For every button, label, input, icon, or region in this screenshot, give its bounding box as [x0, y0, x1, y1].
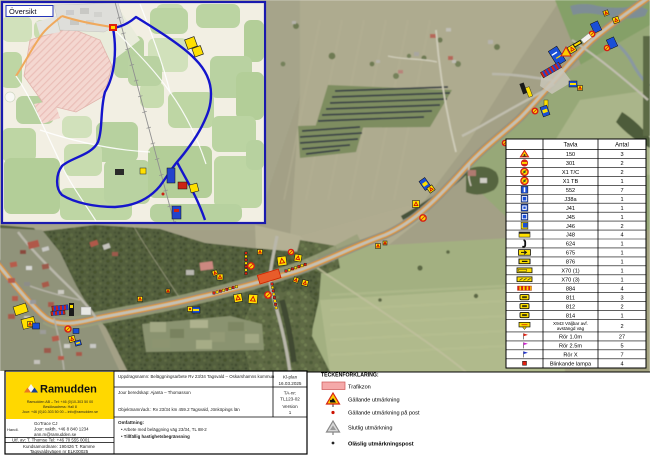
svg-text:Tagsvaldsvägen nr ELK00025: Tagsvaldsvägen nr ELK00025 [30, 449, 89, 454]
svg-text:Ramudden: Ramudden [40, 384, 97, 396]
svg-text:1: 1 [620, 269, 623, 275]
svg-text:1: 1 [620, 251, 623, 257]
svg-text:J38a: J38a [564, 197, 577, 203]
svg-text:• Tillfällig hastighetsbegrän: • Tillfällig hastighetsbegränsning [121, 434, 190, 439]
svg-text:1: 1 [620, 242, 623, 248]
svg-text:Version: Version [282, 404, 298, 409]
svg-text:884: 884 [566, 286, 575, 292]
svg-text:1: 1 [620, 197, 623, 203]
svg-text:2: 2 [620, 324, 623, 330]
svg-text:Rör 1.0m: Rör 1.0m [559, 335, 582, 341]
svg-text:301: 301 [566, 161, 575, 167]
svg-text:X70 (1): X70 (1) [561, 269, 579, 275]
svg-text:Tavla: Tavla [563, 143, 578, 149]
svg-text:Objektnamn/adr.: Rv 23/34 km 4: Objektnamn/adr.: Rv 23/34 km 459.2 Tagsv… [118, 407, 240, 412]
svg-text:1: 1 [620, 179, 623, 185]
svg-text:Jour: vakth. +46 8 840 1234: Jour: vakth. +46 8 840 1234 [34, 427, 89, 432]
svg-text:1: 1 [620, 260, 623, 266]
svg-text:7: 7 [620, 353, 623, 359]
svg-text:ann.m@ramudden.se: ann.m@ramudden.se [34, 432, 77, 437]
svg-text:Blinkande lampa: Blinkande lampa [550, 361, 592, 367]
svg-text:1: 1 [620, 277, 623, 283]
svg-text:27: 27 [619, 335, 625, 341]
svg-text:2: 2 [620, 224, 623, 230]
svg-text:16.03.2025: 16.03.2025 [279, 381, 302, 386]
svg-text:X70 (3): X70 (3) [561, 277, 579, 283]
svg-text:X1 T/C: X1 T/C [562, 170, 579, 176]
svg-text:2: 2 [620, 304, 623, 310]
svg-text:Handl.: Handl. [7, 427, 19, 432]
svg-text:3: 3 [620, 295, 623, 301]
svg-text:150: 150 [566, 152, 575, 158]
svg-text:Jour beredskap: Ajanta – Thoma: Jour beredskap: Ajanta – Thomasson [118, 390, 191, 395]
svg-text:812: 812 [566, 304, 575, 310]
svg-text:Omfattning:: Omfattning: [118, 420, 144, 425]
svg-text:876: 876 [566, 260, 575, 266]
svg-text:3: 3 [620, 152, 623, 158]
svg-text:Antal: Antal [615, 143, 629, 149]
svg-text:Översikt: Översikt [9, 7, 37, 16]
svg-text:• Arbete med beläggning väg 2: • Arbete med beläggning väg 23/34, TL 88… [121, 427, 207, 432]
svg-text:Rör 2.5m: Rör 2.5m [559, 344, 582, 350]
svg-text:7: 7 [620, 188, 623, 194]
svg-text:J41: J41 [566, 206, 575, 212]
svg-text:814: 814 [566, 313, 575, 319]
svg-text:J48: J48 [566, 233, 575, 239]
svg-text:1: 1 [620, 215, 623, 221]
svg-text:Rör X: Rör X [563, 353, 578, 359]
svg-text:1: 1 [620, 313, 623, 319]
svg-text:Kl-plan: Kl-plan [283, 375, 298, 380]
svg-text:2: 2 [620, 170, 623, 176]
svg-text:J46: J46 [566, 224, 575, 230]
svg-text:TECKENFÖRKLARING:: TECKENFÖRKLARING: [321, 372, 379, 379]
svg-text:Gällande utmärkning på post: Gällande utmärkning på post [348, 410, 420, 417]
svg-text:Jour: +46 (0)10-303 50 00 – in: Jour: +46 (0)10-303 50 00 – info@ramudde… [22, 410, 98, 414]
svg-text:avstängd väg: avstängd väg [557, 326, 585, 331]
svg-text:675: 675 [566, 251, 575, 257]
svg-text:Uppdragsnamn: Beläggningsarbet: Uppdragsnamn: Beläggningsarbete Rv 23/34… [118, 374, 275, 379]
svg-text:GoTrace CJ: GoTrace CJ [34, 421, 58, 426]
svg-text:Slutlig utmärkning: Slutlig utmärkning [348, 426, 392, 432]
svg-text:Gällande utmärkning: Gällande utmärkning [348, 398, 400, 404]
svg-text:X1 TB: X1 TB [563, 179, 579, 185]
svg-text:Besöksadress: Hall 8: Besöksadress: Hall 8 [43, 405, 77, 409]
svg-text:811: 811 [566, 295, 575, 301]
svg-text:Ramudden AB – Tel: +46 (0)10-3: Ramudden AB – Tel: +46 (0)10-303 50 00 [27, 400, 93, 404]
svg-text:4: 4 [620, 286, 623, 292]
svg-text:J45: J45 [566, 215, 575, 221]
svg-text:2: 2 [620, 161, 623, 167]
svg-text:624: 624 [566, 242, 575, 248]
svg-text:4: 4 [620, 233, 623, 239]
svg-text:Utf. av: T. Thomse Tel: +46 7: Utf. av: T. Thomse Tel: +46 70 555 0001 [12, 438, 90, 443]
svg-text:552: 552 [566, 188, 575, 194]
svg-text:5: 5 [620, 344, 623, 350]
svg-text:4: 4 [620, 361, 623, 367]
svg-text:1: 1 [289, 410, 292, 415]
svg-text:Oläslig utmärkningspost: Oläslig utmärkningspost [348, 442, 414, 448]
svg-text:TA-nr:: TA-nr: [284, 391, 296, 396]
svg-text:TL123-02: TL123-02 [280, 397, 300, 402]
svg-text:Trafikzon: Trafikzon [348, 385, 371, 391]
svg-text:1: 1 [620, 206, 623, 212]
